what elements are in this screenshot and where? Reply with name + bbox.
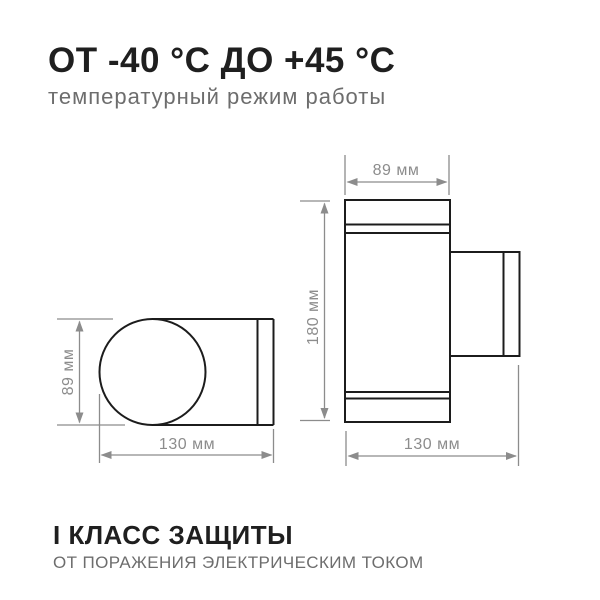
side-height-label: 89 мм: [60, 349, 77, 396]
lamp-body-ring-lines: [345, 225, 450, 399]
side-view-drawing: 89 мм 130 мм: [57, 319, 274, 463]
protection-class-title: I КЛАСС ЗАЩИТЫ: [53, 520, 424, 550]
dimension-drawings: 89 мм 130 мм 89 мм 180 мм 130 мм: [0, 0, 600, 600]
lamp-side-body-outline: [153, 319, 274, 425]
product-spec-card: ОТ -40 °С ДО +45 °С температурный режим …: [0, 0, 600, 600]
lamp-face-circle: [100, 319, 206, 425]
wall-mount-bracket-outline: [450, 252, 520, 356]
side-width-label: 130 мм: [159, 436, 215, 453]
protection-class-subtitle: ОТ ПОРАЖЕНИЯ ЭЛЕКТРИЧЕСКИМ ТОКОМ: [53, 553, 424, 573]
front-view-drawing: 89 мм 180 мм 130 мм: [300, 155, 520, 466]
front-depth-label: 130 мм: [404, 436, 460, 453]
front-height-label: 180 мм: [305, 289, 322, 345]
protection-class-section: I КЛАСС ЗАЩИТЫ ОТ ПОРАЖЕНИЯ ЭЛЕКТРИЧЕСКИ…: [53, 520, 424, 573]
front-width-label: 89 мм: [373, 162, 420, 179]
